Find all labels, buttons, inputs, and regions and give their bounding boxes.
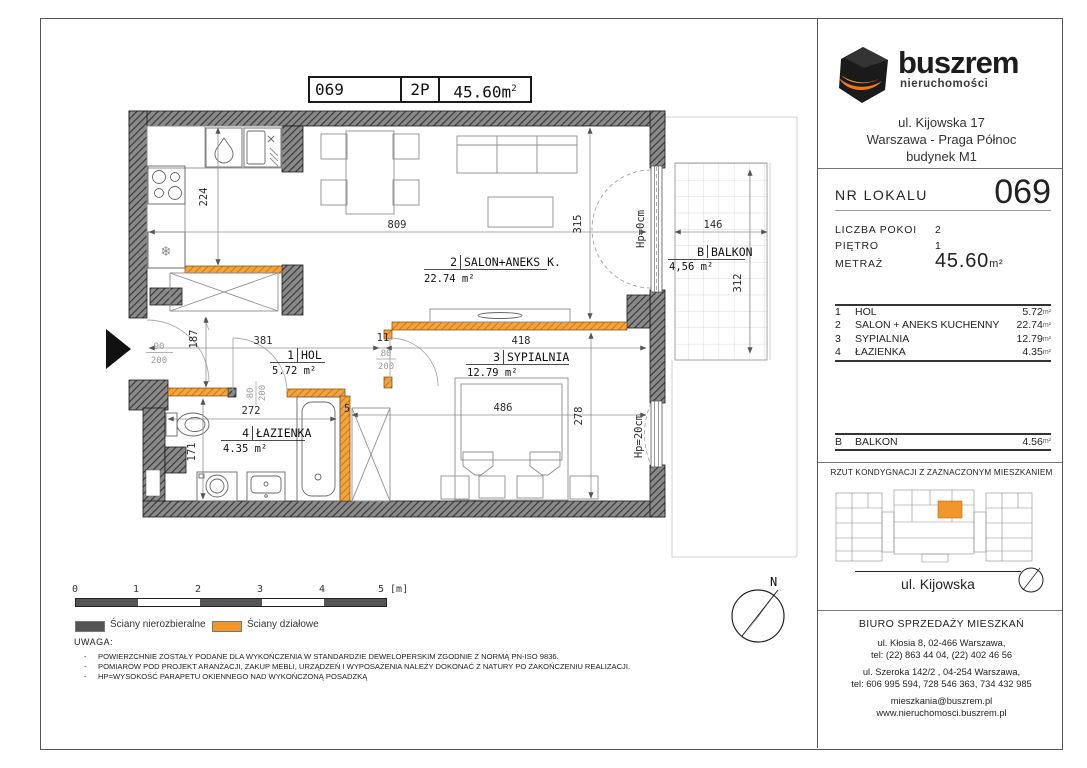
title-block-area-sup: 2 xyxy=(511,84,516,94)
row-area: 4.56 xyxy=(1022,435,1042,449)
unit-number-header: NR LOKALU 069 xyxy=(835,176,1051,211)
legend-structural-label: Ściany nierozbieralne xyxy=(110,619,206,630)
row-name: BALKON xyxy=(855,435,1022,449)
scale-tick-5: 5 [m] xyxy=(378,584,408,595)
brand-name: buszrem xyxy=(898,46,1018,80)
row-name: SALON + ANEKS KUCHENNY xyxy=(855,319,1017,332)
table-row: 2 SALON + ANEKS KUCHENNY 22.74m² xyxy=(835,319,1051,332)
metraz-number: 45.60 xyxy=(935,250,989,272)
row-area: 22.74 xyxy=(1017,319,1043,332)
scale-tick-1: 1 xyxy=(133,584,139,595)
row-area: 4.35 xyxy=(1022,346,1042,359)
office-phone-2: tel: 606 995 594, 728 546 363, 734 432 9… xyxy=(820,679,1063,691)
legend-swatch-partition xyxy=(212,621,242,632)
row-area: 12.79 xyxy=(1017,333,1043,346)
field-liczba-pokoi: LICZBA POKOI 2 xyxy=(835,224,1051,236)
panel-section-line-1 xyxy=(818,168,1062,169)
note-line: -HP=WYSOKOŚĆ PARAPETU OKIENNEGO NAD WYKO… xyxy=(84,672,367,681)
field-value: 2 xyxy=(935,224,941,236)
brand-logo-text: buszrem nieruchomości xyxy=(898,46,1018,90)
note-text: POMIARÓW POD PROJEKT ARANŻACJI, ZAKUP ME… xyxy=(98,662,630,671)
scale-tick-4: 4 xyxy=(319,584,325,595)
table-row: 4 ŁAZIENKA 4.35m² xyxy=(835,346,1051,359)
note-text: POWIERZCHNIE ZOSTAŁY PODANE DLA WYKOŃCZE… xyxy=(98,652,559,661)
panel-section-line-3 xyxy=(818,610,1062,611)
row-area: 5.72 xyxy=(1022,306,1042,319)
row-name: HOL xyxy=(855,306,1022,319)
field-metraz: METRAŻ 45.60m² xyxy=(835,258,1051,270)
table-row: 3 SYPIALNIA 12.79m² xyxy=(835,333,1051,346)
row-area-unit: m² xyxy=(1043,333,1051,346)
row-area-unit: m² xyxy=(1043,346,1051,359)
row-name: SYPIALNIA xyxy=(855,333,1017,346)
notes-title: UWAGA: xyxy=(74,637,113,647)
row-number: B xyxy=(835,435,855,449)
field-label: METRAŻ xyxy=(835,258,883,270)
legend-swatch-structural xyxy=(75,621,105,632)
row-area-unit: m² xyxy=(1043,306,1051,319)
street-name: ul. Kijowska xyxy=(855,576,1021,592)
title-block-unit-number: 069 xyxy=(310,78,402,101)
scale-bar xyxy=(75,598,387,607)
legend-partition-label: Ściany działowe xyxy=(247,619,319,630)
buszrem-logo-icon xyxy=(836,46,890,104)
rooms-table: 1 HOL 5.72m² 2 SALON + ANEKS KUCHENNY 22… xyxy=(835,304,1051,362)
row-number: 4 xyxy=(835,346,855,359)
row-number: 2 xyxy=(835,319,855,332)
title-block-area: 45.60m2 xyxy=(440,78,530,101)
office-phone-1: tel: (22) 863 44 04, (22) 402 46 56 xyxy=(820,650,1063,662)
office-website: www.nieruchomosci.buszrem.pl xyxy=(820,708,1063,720)
note-line: -POMIARÓW POD PROJEKT ARANŻACJI, ZAKUP M… xyxy=(84,662,630,671)
metraz-value: 45.60m² xyxy=(935,250,1004,273)
office-email: mieszkania@buszrem.pl xyxy=(820,696,1063,708)
address-street: ul. Kijowska 17 xyxy=(820,114,1063,131)
field-label: PIĘTRO xyxy=(835,240,879,252)
unit-number-label: NR LOKALU xyxy=(835,187,928,208)
title-block-rooms-code: 2P xyxy=(402,78,440,101)
note-text: HP=WYSOKOŚĆ PARAPETU OKIENNEGO NAD WYKOŃ… xyxy=(98,672,367,681)
project-address: ul. Kijowska 17 Warszawa - Praga Północ … xyxy=(820,114,1063,165)
unit-number-value: 069 xyxy=(994,176,1051,208)
row-area-unit: m² xyxy=(1043,435,1051,449)
table-row: 1 HOL 5.72m² xyxy=(835,306,1051,319)
row-area-unit: m² xyxy=(1043,319,1051,332)
scale-tick-3: 3 xyxy=(257,584,263,595)
metraz-unit: m² xyxy=(989,258,1003,270)
row-number: 3 xyxy=(835,333,855,346)
brand-logo: buszrem nieruchomości xyxy=(836,46,1054,104)
balcony-table-row: B BALKON 4.56m² xyxy=(835,433,1051,451)
scale-tick-0: 0 xyxy=(72,584,78,595)
field-label: LICZBA POKOI xyxy=(835,224,917,236)
floor-plan-sheet: 146 312 B BALKON 4,56 m² xyxy=(0,0,1087,768)
title-block-area-value: 45.60m xyxy=(453,82,511,101)
note-line: -POWIERZCHNIE ZOSTAŁY PODANE DLA WYKOŃCZ… xyxy=(84,652,559,661)
panel-section-line-2 xyxy=(818,462,1062,463)
row-number: 1 xyxy=(835,306,855,319)
panel-divider xyxy=(817,18,818,748)
street-underline xyxy=(855,571,1021,572)
address-building: budynek M1 xyxy=(820,148,1063,165)
office-address-1: ul. Kłosia 8, 02-466 Warszawa, xyxy=(820,638,1063,650)
scale-tick-2: 2 xyxy=(195,584,201,595)
row-name: ŁAZIENKA xyxy=(855,346,1022,359)
sales-office-block: BIURO SPRZEDAŻY MIESZKAŃ ul. Kłosia 8, 0… xyxy=(820,618,1063,719)
address-city: Warszawa - Praga Północ xyxy=(820,131,1063,148)
sales-office-title: BIURO SPRZEDAŻY MIESZKAŃ xyxy=(820,618,1063,630)
title-block: 069 2P 45.60m2 xyxy=(308,76,532,103)
key-plan-title: RZUT KONDYGNACJI Z ZAZNACZONYM MIESZKANI… xyxy=(820,468,1063,477)
office-address-2: ul. Szeroka 142/2 , 04-254 Warszawa, xyxy=(820,667,1063,679)
